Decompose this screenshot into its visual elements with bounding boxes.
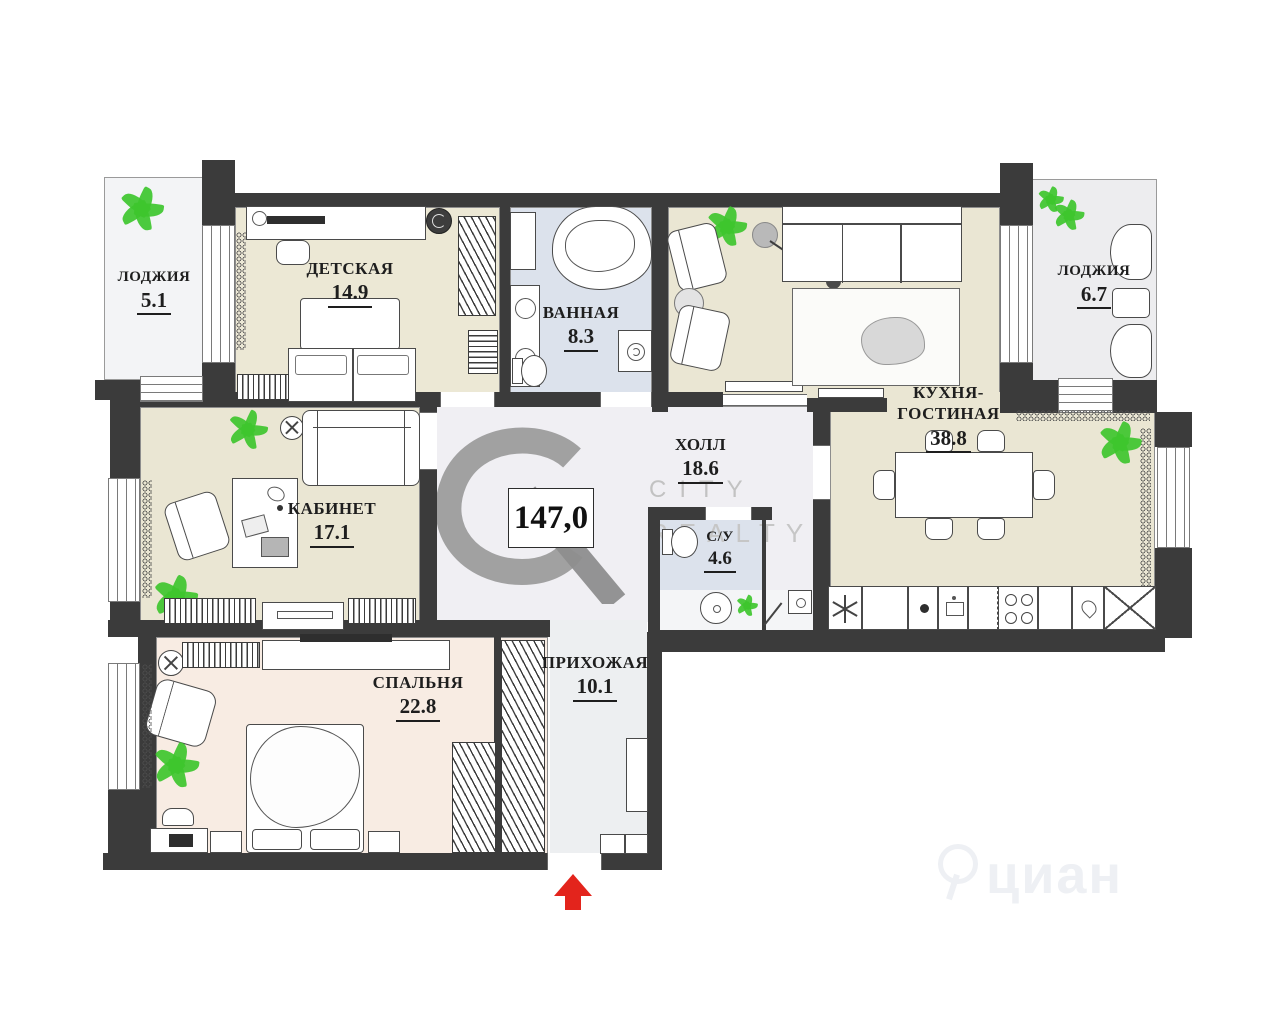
living-sofa — [782, 206, 962, 282]
door-kitchen — [813, 445, 830, 500]
cian-watermark-text: циан — [986, 844, 1123, 906]
bedroom-shelf — [182, 642, 260, 668]
window-loggia-right — [1000, 225, 1033, 363]
bedroom-pillow — [310, 829, 360, 850]
study-console-table — [262, 602, 344, 630]
label-entry: ПРИХОЖАЯ 10.1 — [530, 652, 660, 702]
plant — [116, 186, 166, 232]
bedroom-dresser — [262, 640, 450, 670]
nursery-dresser — [237, 374, 289, 400]
label-hall: ХОЛЛ 18.6 — [648, 434, 753, 484]
label-nursery: ДЕТСКАЯ 14.9 — [280, 258, 420, 308]
wall — [1113, 380, 1157, 413]
study-curtain — [142, 480, 152, 598]
study-shelf-right — [348, 598, 416, 624]
kitchen-counter — [1038, 586, 1072, 630]
wall — [500, 207, 510, 405]
door-living-opening — [723, 394, 807, 406]
window-study — [108, 478, 140, 602]
bedroom-vanity-stool — [162, 808, 194, 826]
study-sofa — [302, 410, 420, 486]
dining-chair — [1033, 470, 1055, 500]
dining-chair — [873, 470, 895, 500]
window-loggia-left-door — [140, 376, 203, 402]
plant — [1096, 420, 1144, 466]
window-loggia-left — [202, 225, 235, 363]
plant — [150, 742, 202, 790]
wall — [110, 392, 140, 480]
wc-basin — [700, 592, 732, 624]
door-study — [420, 412, 437, 470]
nursery-wardrobe — [458, 216, 496, 316]
bathtub — [552, 206, 652, 290]
entry-bench — [600, 834, 648, 854]
kitchen-fridge-icon — [1104, 586, 1156, 630]
window-loggia-right-door — [1058, 378, 1113, 413]
wall — [103, 853, 547, 870]
door-entrance — [547, 853, 602, 870]
bathroom-shelf — [510, 212, 536, 270]
nursery-desk — [246, 206, 426, 240]
bathroom-toilet — [512, 352, 546, 388]
bedroom-tv — [300, 634, 392, 642]
utility-boiler — [788, 590, 812, 614]
label-study: КАБИНЕТ 17.1 — [262, 498, 402, 548]
wall — [1155, 548, 1192, 638]
wall — [762, 520, 766, 632]
study-shelf-left — [164, 598, 256, 624]
window-bedroom — [108, 663, 140, 790]
kitchen-counter — [862, 586, 908, 630]
wall — [648, 630, 1165, 652]
wall — [495, 392, 600, 407]
label-wc: С/У 4.6 — [688, 528, 752, 573]
kitchen-sink-star-icon — [828, 586, 862, 630]
bedroom-curtain — [142, 664, 152, 788]
total-area-value: 147,0 — [514, 500, 588, 537]
label-kitchen-living: КУХНЯ- ГОСТИНАЯ 38.8 — [876, 382, 1021, 453]
floor-plan: CITY REALTY циан — [0, 0, 1280, 1021]
wall — [1000, 163, 1033, 225]
label-bedroom: СПАЛЬНЯ 22.8 — [348, 672, 488, 722]
study-fan-icon — [280, 416, 304, 440]
tv-stand — [818, 388, 884, 398]
dining-chair — [925, 518, 953, 540]
bedroom-pillow — [252, 829, 302, 850]
dining-table — [895, 452, 1033, 518]
plant — [226, 412, 270, 450]
entrance-arrow-stem — [565, 895, 581, 910]
nursery-radiator — [468, 330, 498, 374]
wall — [108, 790, 140, 856]
kitchen-counter — [968, 586, 998, 630]
entry-cabinet — [626, 738, 648, 812]
label-loggia-left: ЛОДЖИЯ 5.1 — [106, 268, 202, 315]
nursery-bed — [288, 348, 416, 402]
entrance-arrow-icon — [554, 874, 592, 896]
bedroom-nightstand — [210, 831, 242, 853]
kitchen-stove-icon — [998, 586, 1038, 630]
kitchen-sink-icon — [938, 586, 968, 630]
bedroom-nightstand — [368, 831, 400, 853]
loggia-chair-bottom — [1110, 324, 1152, 378]
wall — [652, 207, 668, 412]
label-bathroom: ВАННАЯ 8.3 — [516, 302, 646, 352]
living-rug — [792, 288, 960, 386]
dining-chair — [977, 518, 1005, 540]
wall — [202, 193, 1033, 207]
door-wc — [705, 507, 752, 520]
bedroom-fan-icon — [158, 650, 184, 676]
plant — [1052, 198, 1086, 232]
kitchen-gas-icon — [1072, 586, 1104, 630]
nursery-curtain — [236, 232, 246, 350]
total-area-badge: 147,0 — [508, 488, 594, 548]
wall — [652, 392, 723, 407]
wall — [1155, 412, 1192, 447]
door-nursery — [440, 392, 495, 407]
nursery-globe — [426, 208, 452, 234]
window-kitchen — [1157, 447, 1190, 548]
door-bathroom — [600, 392, 652, 407]
label-loggia-right: ЛОДЖИЯ 6.7 — [1040, 262, 1148, 309]
bedroom-vanity-desk — [150, 828, 208, 853]
wall — [602, 853, 662, 870]
kitchen-hob-icon — [908, 586, 938, 630]
wall — [1033, 380, 1058, 413]
bedroom-wardrobe — [452, 742, 496, 853]
plant — [735, 594, 759, 618]
wall — [648, 520, 660, 632]
